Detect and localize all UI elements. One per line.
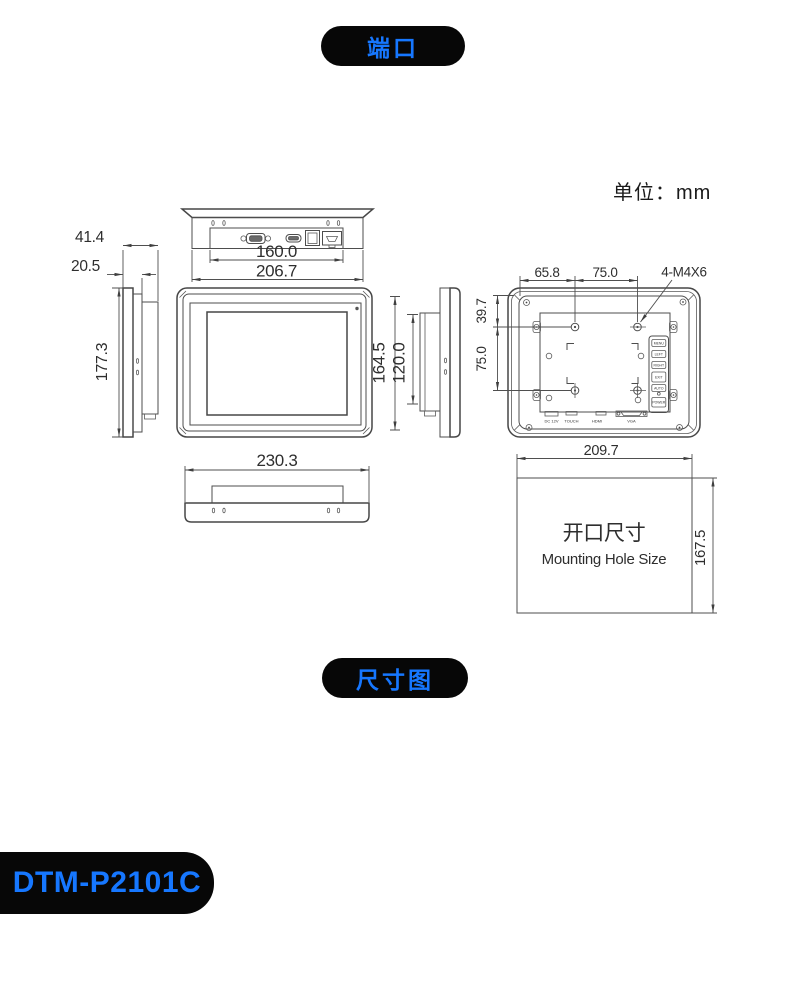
technical-drawing: 160.0 206.7 41.4 20.5 177.3 <box>0 0 790 981</box>
front-height-dims: 164.5 120.0 <box>370 297 419 431</box>
dim-65-8: 65.8 <box>534 265 559 280</box>
dim-39-7: 39.7 <box>474 298 489 323</box>
osd-exit-button-label: EXIT <box>655 376 663 380</box>
dc-label: DC 12V <box>544 419 558 424</box>
dim-75-0-y: 75.0 <box>474 346 489 371</box>
dim-120-0: 120.0 <box>390 342 409 383</box>
side-view-right <box>420 288 460 437</box>
screen <box>207 312 347 415</box>
rear-view: MENU LEFT RIGHT EXIT AUTO POWER DC 12V <box>474 265 707 438</box>
serial-connector-icon <box>323 232 342 248</box>
dim-177-3: 177.3 <box>94 342 111 381</box>
dim-206-7: 206.7 <box>256 262 297 281</box>
touch-label: TOUCH <box>564 419 578 424</box>
vga-port-icon <box>616 411 647 417</box>
model-badge: DTM-P2101C <box>0 852 214 914</box>
osd-left-button-label: LEFT <box>655 353 663 357</box>
cutout-title-cn: 开口尺寸 <box>563 522 646 545</box>
dim-209-7: 209.7 <box>584 443 619 459</box>
top-view: 160.0 206.7 <box>182 209 373 282</box>
dim-230-3: 230.3 <box>256 451 297 470</box>
model-badge-label: DTM-P2101C <box>13 866 201 900</box>
cutout-title-en: Mounting Hole Size <box>542 551 667 568</box>
product-drawing-page: 端口 单位：mm <box>0 0 790 981</box>
lan-port-icon <box>306 231 320 246</box>
rear-connectors: DC 12V TOUCH HDMI VGA <box>544 411 647 424</box>
side-view-left: 41.4 20.5 177.3 <box>71 229 158 437</box>
dim-41-4: 41.4 <box>75 229 105 246</box>
vesa-corner-marks <box>567 344 638 384</box>
osd-menu-button-label: MENU <box>654 342 665 346</box>
mounting-cutout: 开口尺寸 Mounting Hole Size 209.7 167.5 <box>517 443 717 613</box>
bottom-view: 230.3 <box>185 451 369 522</box>
osd-power-button-label: POWER <box>652 401 665 405</box>
screw-spec: 4-M4X6 <box>661 265 706 280</box>
led-indicator <box>355 307 358 310</box>
dim-164-5: 164.5 <box>370 342 389 383</box>
dim-167-5: 167.5 <box>692 530 709 566</box>
front-view <box>177 288 372 437</box>
osd-right-button-label: RIGHT <box>654 364 665 368</box>
hdmi-label: HDMI <box>592 419 602 424</box>
dim-20-5: 20.5 <box>71 258 100 275</box>
vga-label: VGA <box>627 419 636 424</box>
osd-button-strip: MENU LEFT RIGHT EXIT AUTO POWER <box>649 336 669 413</box>
dim-160: 160.0 <box>256 242 297 261</box>
hdmi-connector-icon <box>286 235 301 243</box>
dim-75-0-x: 75.0 <box>592 265 617 280</box>
section-badge-dimensions: 尺寸图 <box>322 658 468 698</box>
section-badge-dimensions-label: 尺寸图 <box>356 661 434 695</box>
vesa-holes <box>571 323 646 398</box>
power-symbol-icon <box>657 392 660 395</box>
osd-auto-button-label: AUTO <box>654 387 664 391</box>
